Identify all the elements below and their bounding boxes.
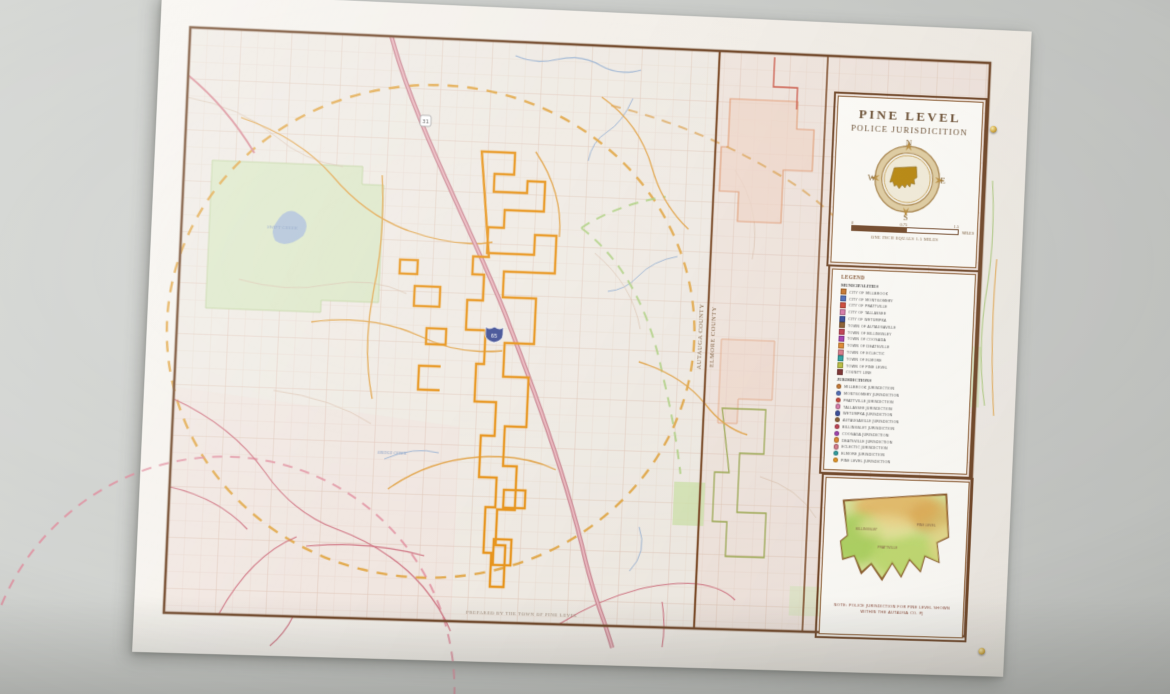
- legend-color-swatch: [840, 296, 846, 302]
- compass-north-label: N: [906, 138, 913, 148]
- legend-color-swatch: [840, 302, 846, 308]
- legend-color-swatch: [838, 336, 844, 342]
- legend-color-swatch: [838, 342, 844, 348]
- legend-color-swatch: [840, 309, 846, 315]
- legend-color-swatch: [838, 356, 844, 362]
- legend-color-swatch: [839, 329, 845, 335]
- legend-dot-marker: [834, 431, 839, 436]
- scale-unit: MILES: [962, 230, 974, 235]
- legend-color-swatch: [841, 289, 847, 295]
- legend-dot-marker: [836, 397, 841, 402]
- legend-row-label: COUNTY LINE: [846, 370, 872, 375]
- scale-bar-fill: [852, 226, 907, 232]
- compass-south-label: S: [903, 212, 908, 222]
- legend-dot-marker: [835, 411, 840, 416]
- inset-label-1: BILLINGSLEY: [856, 527, 879, 532]
- title-panel: PINE LEVEL POLICE JURISDICITION N: [830, 96, 983, 269]
- legend-dot-marker: [836, 390, 841, 395]
- legend-panel: LEGEND MUNICIPALITIES CITY OF MILLBROOK …: [823, 268, 976, 474]
- photo-of-wall-map: SWIFT CREEK BRIDGE CREEK: [0, 0, 1170, 694]
- interstate-65-shield-number: 65: [491, 334, 497, 340]
- legend-color-swatch: [837, 362, 843, 368]
- legend-dot-marker: [836, 384, 841, 389]
- legend-dot-marker: [835, 424, 840, 429]
- us-31-shield: 31: [420, 115, 431, 126]
- inset-panel: BILLINGSLEY PRATTVILLE PINE LEVEL NOTE: …: [819, 477, 970, 639]
- inset-label-3: PINE LEVEL: [916, 523, 935, 528]
- legend-jurisdiction-rows: MILLBROOK JURISDICTION MONTGOMERY JURISD…: [833, 383, 970, 468]
- paper-map-sheet: SWIFT CREEK BRIDGE CREEK: [132, 0, 1032, 677]
- legend-dot-marker: [834, 437, 839, 442]
- legend-color-swatch: [838, 349, 844, 355]
- creek-label: BRIDGE CREEK: [378, 450, 407, 456]
- legend-dot-marker: [833, 451, 838, 456]
- legend-dot-marker: [833, 457, 838, 462]
- legend-dot-marker: [835, 417, 840, 422]
- compass-east-label: E: [940, 176, 946, 186]
- legend-row-label: PINE LEVEL JURISDICTION: [841, 458, 891, 464]
- county-elevation-inset: BILLINGSLEY PRATTVILLE PINE LEVEL: [826, 483, 963, 599]
- legend-dot-marker: [835, 404, 840, 409]
- map-sheet-wrapper: SWIFT CREEK BRIDGE CREEK: [132, 0, 1032, 677]
- legend-color-swatch: [839, 322, 845, 328]
- legend-municipality-rows: CITY OF MILLBROOK CITY OF MONTGOMERY CIT…: [837, 288, 974, 380]
- legend-color-swatch: [837, 369, 843, 375]
- compass-rose: N S W E: [864, 135, 950, 223]
- inset-label-2: PRATTVILLE: [878, 545, 898, 550]
- legend-color-swatch: [839, 316, 845, 322]
- legend-dot-marker: [834, 444, 839, 449]
- us-31-shield-number: 31: [422, 120, 429, 126]
- compass-west-label: W: [867, 173, 876, 183]
